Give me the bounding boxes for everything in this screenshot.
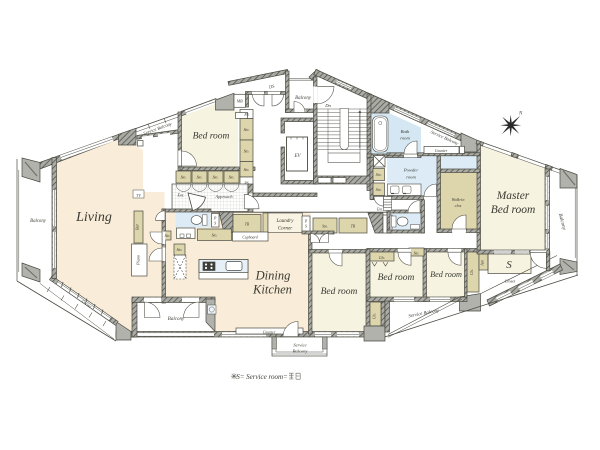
svg-text:room: room <box>400 136 410 141</box>
svg-text:Clo.: Clo. <box>373 313 377 319</box>
svg-text:Walk-in: Walk-in <box>452 197 465 202</box>
svg-text:S: S <box>506 259 512 271</box>
svg-text:room: room <box>406 175 416 180</box>
svg-text:Bed room: Bed room <box>430 270 462 279</box>
svg-text:Clo.: Clo. <box>470 269 474 275</box>
svg-text:Sto.: Sto. <box>213 176 219 180</box>
svg-text:N: N <box>518 112 523 117</box>
svg-text:Approach: Approach <box>214 194 233 199</box>
svg-text:EV: EV <box>293 154 301 159</box>
svg-text:S: S <box>305 225 307 229</box>
svg-text:Balcony: Balcony <box>30 219 47 224</box>
svg-text:TV: TV <box>136 193 141 198</box>
svg-text:Bed room: Bed room <box>378 273 415 283</box>
svg-text:S: S <box>387 225 389 229</box>
svg-text:PS: PS <box>243 182 248 186</box>
svg-text:Bar: Bar <box>135 224 140 230</box>
svg-text:MB: MB <box>236 99 243 104</box>
svg-text:Piano: Piano <box>136 255 141 266</box>
svg-text:Counter: Counter <box>263 331 276 335</box>
svg-text:Living: Living <box>75 210 112 225</box>
svg-text:TR: TR <box>245 223 250 227</box>
svg-text:Laundry: Laundry <box>276 219 295 224</box>
svg-text:Dn: Dn <box>324 103 331 108</box>
svg-text:Sto.: Sto. <box>165 234 171 238</box>
svg-text:S= Service room=: S= Service room= <box>236 373 288 381</box>
svg-text:Ent.: Ent. <box>176 193 184 198</box>
svg-text:Master: Master <box>496 190 530 202</box>
svg-text:Sto.: Sto. <box>244 168 250 172</box>
svg-text:Sto.: Sto. <box>376 188 382 192</box>
svg-text:Sto.: Sto. <box>376 173 382 177</box>
svg-text:Sto.: Sto. <box>197 176 203 180</box>
svg-text:clos: clos <box>455 203 462 208</box>
svg-text:Corner: Corner <box>278 227 293 232</box>
svg-text:Clo.: Clo. <box>379 256 385 260</box>
svg-text:Balcony: Balcony <box>168 317 185 322</box>
svg-text:Counter: Counter <box>435 149 448 153</box>
svg-text:Bath: Bath <box>401 129 410 134</box>
svg-text:Sto.: Sto. <box>229 176 235 180</box>
svg-text:PS: PS <box>243 113 248 117</box>
svg-text:TR: TR <box>351 225 356 229</box>
svg-text:S: S <box>214 222 216 226</box>
svg-text:Kitchen: Kitchen <box>252 283 292 297</box>
svg-text:Sto.: Sto. <box>212 234 218 238</box>
svg-text:Ent.: Ent. <box>376 208 383 212</box>
svg-text:Service: Service <box>293 343 306 348</box>
svg-text:Powder: Powder <box>403 168 419 173</box>
svg-text:Balcony: Balcony <box>293 349 308 354</box>
svg-text:Bed room: Bed room <box>321 287 358 297</box>
svg-text:Cupboard: Cupboard <box>242 235 257 239</box>
svg-text:Sto.: Sto. <box>414 251 420 255</box>
svg-text:Sto.: Sto. <box>177 248 183 252</box>
svg-text:Bed room: Bed room <box>193 132 230 142</box>
svg-text:Sto.: Sto. <box>244 150 250 154</box>
svg-text:Closet: Closet <box>505 279 517 284</box>
svg-text:Dining: Dining <box>255 269 291 283</box>
svg-text:Ant: Ant <box>481 259 485 266</box>
svg-text:Sto.: Sto. <box>244 128 250 132</box>
svg-text:Sto.: Sto. <box>322 225 328 229</box>
svg-text:Sto.: Sto. <box>181 176 187 180</box>
svg-text:Balcony: Balcony <box>295 96 312 101</box>
svg-text:Bed room: Bed room <box>491 204 536 216</box>
